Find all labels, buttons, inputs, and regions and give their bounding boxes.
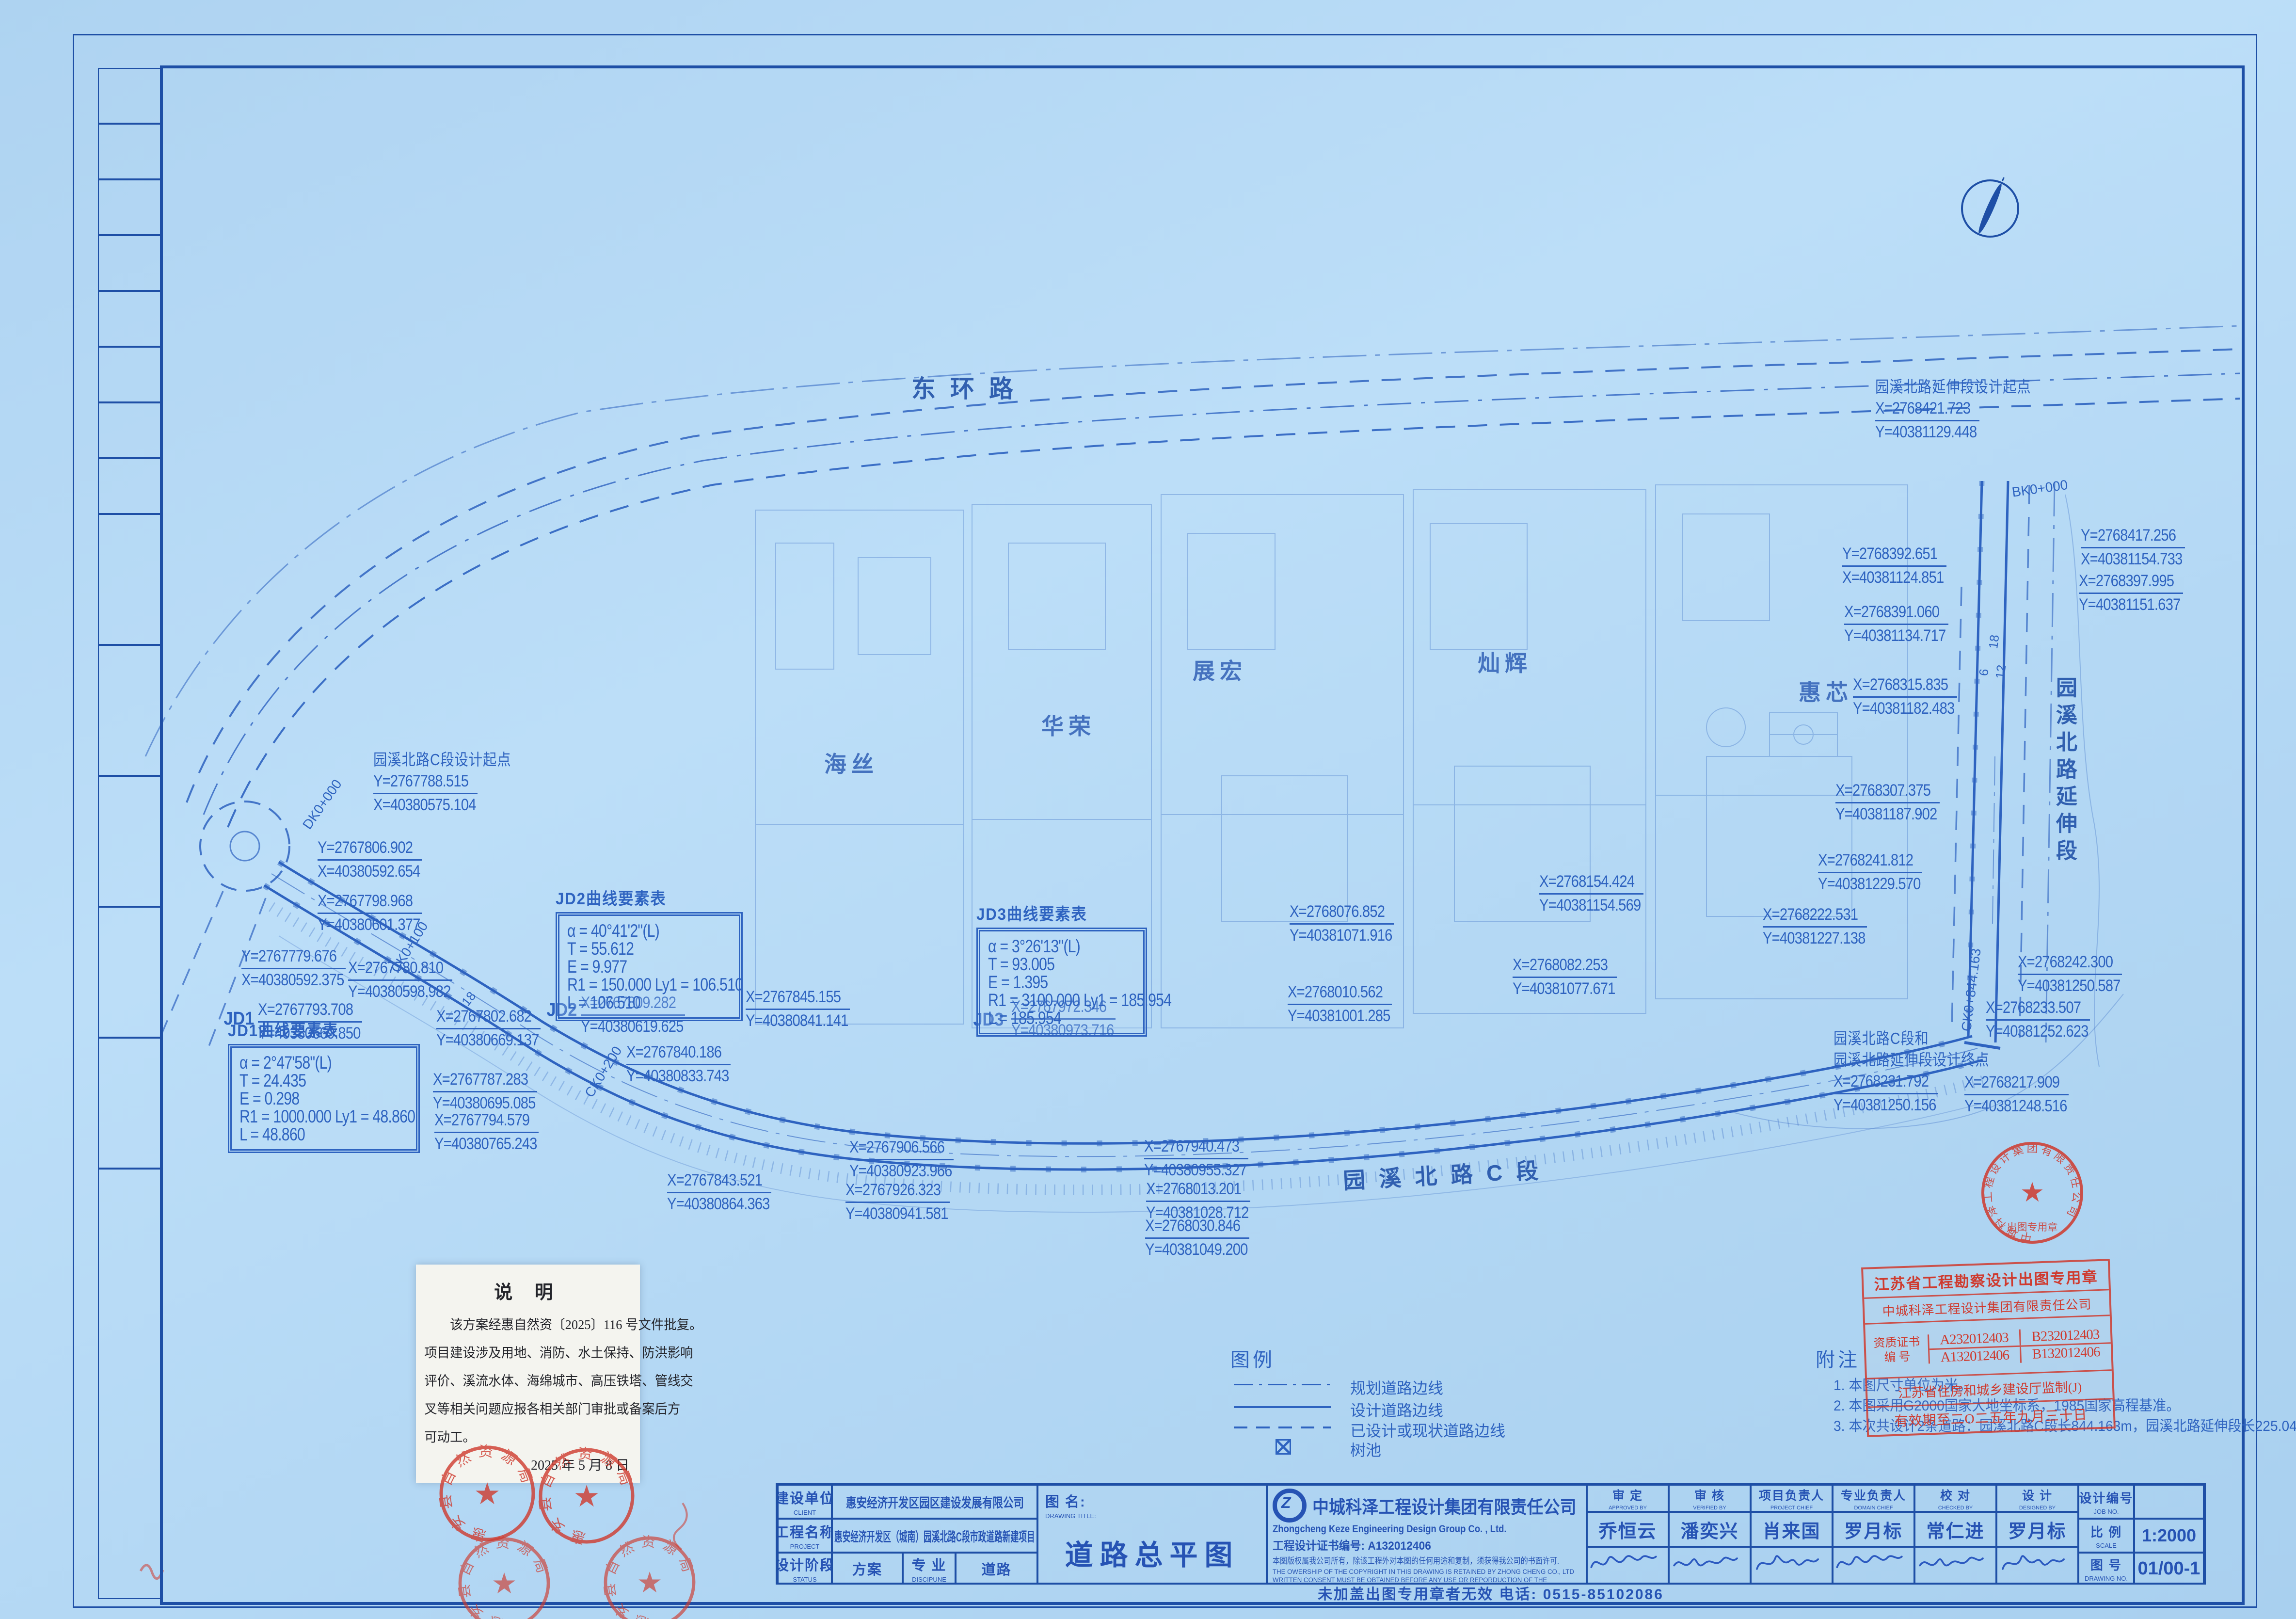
coordinate-callout: X=2768154.424Y=40381154.569 xyxy=(1539,871,1643,916)
curve-table-row: E = 1.395 xyxy=(988,973,1109,991)
role-label: 校 对 xyxy=(1940,1486,1971,1504)
drawing-title: 道路总平图 xyxy=(1065,1532,1239,1573)
notes-lines: 该方案经惠自然资〔2025〕116 号文件批复。项目建设涉及用地、消防、水土保持… xyxy=(416,1311,640,1451)
star-icon: ★ xyxy=(474,1477,501,1511)
callout-line-2: X=40381154.733 xyxy=(2081,548,2185,570)
callout-line-1: Y=2767779.676 xyxy=(241,946,346,969)
role-header: 设 计DESIGNED BY xyxy=(1996,1485,2078,1512)
callout-line-2: Y=40381134.717 xyxy=(1844,625,1948,646)
curve-table-row: T = 24.435 xyxy=(239,1072,378,1090)
drawing-title-label: 图 名: xyxy=(1045,1491,1086,1511)
callout-line-1: X=2768013.201 xyxy=(1146,1178,1250,1202)
role-name: 肖来国 xyxy=(1751,1512,1833,1547)
star-icon: ★ xyxy=(637,1566,662,1599)
role-label: 审 定 xyxy=(1612,1486,1643,1504)
curve-table-row: T = 55.612 xyxy=(567,940,702,958)
legend-item: 设计道路边线 xyxy=(1234,1398,1534,1418)
callout-line-2: Y=40381049.200 xyxy=(1145,1239,1249,1260)
status-value: 方案 xyxy=(852,1558,882,1579)
coordinate-callout: X=2768030.846Y=40381049.200 xyxy=(1145,1215,1249,1260)
callout-line-2: X=40381124.851 xyxy=(1842,567,1946,588)
drawing-no-label-en: DRAWING NO. xyxy=(2085,1575,2128,1582)
coordinate-callout: X=2768222.531Y=40381227.138 xyxy=(1763,904,1867,949)
copyright-cn: 本图版权属我公司所有，除该工程外对本图的任何用途和复制，须获得我公司的书面许可. xyxy=(1273,1555,1559,1567)
callout-title: 园溪北路C段设计起点 xyxy=(373,749,511,770)
remarks-title: 附注 xyxy=(1816,1344,1860,1372)
signature-scribble xyxy=(1915,1548,1988,1579)
callout-line-1: X=2768076.852 xyxy=(1290,901,1394,925)
callout-line-1: X=2768231.792 xyxy=(1834,1071,1938,1094)
callout-line-1: X=2768010.562 xyxy=(1288,981,1392,1005)
signature-scribble xyxy=(1752,1548,1824,1579)
revision-strip-cell xyxy=(98,291,161,347)
revision-strip-cell xyxy=(98,1038,161,1169)
callout-line-2: Y=40381129.448 xyxy=(1875,421,2031,443)
coordinate-callout: X=2767845.155Y=40380841.141 xyxy=(746,986,850,1031)
callout-line-2: X=40380592.375 xyxy=(241,969,346,991)
project-label-en: PROJECT xyxy=(790,1543,820,1550)
curve-table-row: E = 9.977 xyxy=(567,958,702,976)
coordinate-callout: 园溪北路延伸段设计起点X=2768421.723Y=40381129.448 xyxy=(1875,376,2031,443)
notes-line: 叉等相关问题应报各相关部门审批或备案后方 xyxy=(416,1395,631,1423)
role-label-en: CHECKED BY xyxy=(1938,1505,1973,1511)
seal-cert-b1: B232012403 xyxy=(2020,1326,2111,1345)
coordinate-callout: X=2768076.852Y=40381071.916 xyxy=(1290,901,1394,946)
scale-label: 比 例 xyxy=(2090,1523,2122,1540)
legend-title: 图例 xyxy=(1230,1344,1275,1372)
callout-line-2: Y=40381182.483 xyxy=(1853,698,1957,719)
status-label-en: STATUS xyxy=(793,1576,816,1583)
coordinate-callout: X=2767843.521Y=40380864.363 xyxy=(667,1170,771,1215)
status-label: 设计阶段 xyxy=(778,1554,832,1574)
callout-line-1: X=2768154.424 xyxy=(1539,871,1643,895)
callout-line-1: X=2767845.155 xyxy=(746,986,850,1010)
coordinate-callout: X=2767802.682Y=40380669.137 xyxy=(436,1006,541,1051)
notes-line: 该方案经惠自然资〔2025〕116 号文件批复。 xyxy=(416,1311,631,1339)
callout-line-1: X=2767840.186 xyxy=(626,1042,731,1065)
star-icon: ★ xyxy=(2020,1177,2044,1207)
drawing-title-label-en: DRAWING TITLE: xyxy=(1045,1512,1096,1520)
coordinate-callout: Y=2768417.256X=40381154.733 xyxy=(2081,525,2185,570)
curve-table-row: R1 = 3100.000 Ly1 = 185.954 xyxy=(988,991,1109,1009)
role-label-en: VERIFIED BY xyxy=(1693,1505,1726,1511)
star-icon: ★ xyxy=(573,1480,600,1513)
coordinate-callout: X=2768397.995Y=40381151.637 xyxy=(2079,570,2183,615)
tree-pit-icon xyxy=(1276,1439,1291,1455)
callout-line-2: Y=40381151.637 xyxy=(2079,594,2183,615)
coordinate-callout: Y=2767806.902X=40380592.654 xyxy=(318,837,422,882)
role-name-value: 罗月标 xyxy=(2008,1516,2066,1543)
role-name: 常仁进 xyxy=(1914,1512,1996,1547)
company-cert-no: 工程设计证书编号: A132012406 xyxy=(1273,1536,1431,1553)
callout-line-2: Y=40380923.966 xyxy=(849,1160,954,1182)
seal-cert-label: 资质证书 编 号 xyxy=(1865,1334,1930,1366)
callout-line-1: X=2768242.300 xyxy=(2018,951,2122,975)
role-signature xyxy=(1914,1547,1996,1585)
role-signature xyxy=(1833,1547,1914,1585)
coordinate-callout: X=2768391.060Y=40381134.717 xyxy=(1844,601,1948,646)
seal-cert-b2: B132012406 xyxy=(2021,1344,2111,1363)
callout-line-2: X=40380575.104 xyxy=(373,794,511,816)
role-name: 罗月标 xyxy=(1833,1512,1914,1547)
callout-line-2: Y=40381187.902 xyxy=(1835,803,1940,825)
legend-item: 已设计或现状道路边线 xyxy=(1234,1419,1534,1438)
coordinate-callout: 园溪北路C段设计起点Y=2767788.515X=40380575.104 xyxy=(373,749,511,816)
client-value: 惠安经济开发区园区建设发展有限公司 xyxy=(845,1492,1023,1511)
curve-table-box: α = 2°47'58"(L)T = 24.435E = 0.298R1 = 1… xyxy=(228,1044,420,1153)
role-header: 专业负责人DOMAIN CHIEF xyxy=(1833,1485,1914,1512)
curve-table-title: JD1曲线要素表 xyxy=(228,1017,404,1041)
legend-item-label: 树池 xyxy=(1350,1438,1381,1460)
callout-line-2: Y=40381227.138 xyxy=(1763,928,1867,949)
revision-strip-cell xyxy=(98,68,161,124)
company-seal-bottom-text: 出图专用章 xyxy=(2007,1221,2058,1233)
notes-seal-3: 惠安县自然资源局 ★ xyxy=(448,1527,560,1619)
callout-line-1: Y=2768417.256 xyxy=(2081,525,2185,548)
curve-table-row: E = 0.298 xyxy=(239,1090,378,1107)
line-style-icon xyxy=(1234,1406,1331,1411)
curve-table-box: α = 40°41'2"(L)T = 55.612E = 9.977R1 = 1… xyxy=(556,912,743,1021)
callout-line-1: X=2767798.968 xyxy=(318,890,422,914)
callout-line-2: X=40380592.654 xyxy=(318,861,422,882)
notes-title: 说 明 xyxy=(416,1277,640,1304)
coordinate-callout: 园溪北路C段和园溪北路延伸段设计终点X=2768231.792Y=4038125… xyxy=(1834,1028,1990,1116)
curve-table-row: R1 = 150.000 Ly1 = 106.510 xyxy=(567,976,702,994)
notes-seal-4: 惠安县自然资源局 ★ xyxy=(594,1526,705,1619)
coordinate-callout: X=2768082.253Y=40381077.671 xyxy=(1513,954,1617,999)
design-license-seal: 江苏省工程勘察设计出图专用章 中城科泽工程设计集团有限责任公司 资质证书 编 号… xyxy=(1861,1259,2116,1437)
signature-scribble xyxy=(1588,1548,1660,1579)
callout-line-1: Y=2767788.515 xyxy=(373,770,478,794)
callout-line-1: X=2768233.507 xyxy=(1986,997,2090,1021)
notes-line: 项目建设涉及用地、消防、水土保持、防洪影响 xyxy=(416,1339,631,1367)
job-no-label-en: JOB NO. xyxy=(2093,1508,2119,1515)
coordinate-callout: X=2767840.186Y=40380833.743 xyxy=(626,1042,731,1087)
revision-strip-cell xyxy=(98,402,161,458)
curve-table-row: L = 48.860 xyxy=(239,1125,378,1143)
callout-line-2: Y=40380941.581 xyxy=(845,1203,950,1224)
revision-strip-cell xyxy=(98,458,161,514)
curve-table: JD2曲线要素表α = 40°41'2"(L)T = 55.612E = 9.9… xyxy=(556,885,743,1021)
notes-line: 评价、溪流水体、海绵城市、高压铁塔、管线交 xyxy=(416,1367,631,1395)
role-signature xyxy=(1669,1547,1751,1585)
callout-line-2: Y=40381250.156 xyxy=(1834,1094,1990,1116)
curve-table: JD3曲线要素表α = 3°26'13"(L)T = 93.005E = 1.3… xyxy=(976,901,1147,1037)
callout-line-1: X=2768421.723 xyxy=(1875,398,1979,421)
role-signature xyxy=(1996,1547,2078,1585)
revision-strip-cell xyxy=(98,645,161,776)
role-label-en: PROJECT CHIEF xyxy=(1770,1505,1813,1511)
role-label-en: DESIGNED BY xyxy=(2019,1505,2056,1511)
curve-table-title: JD3曲线要素表 xyxy=(976,901,1133,925)
job-no-label: 设计编号 xyxy=(2079,1489,2134,1507)
callout-line-1: X=2767843.521 xyxy=(667,1170,771,1193)
callout-line-1: X=2768397.995 xyxy=(2079,570,2183,594)
legend-item-label: 设计道路边线 xyxy=(1350,1398,1443,1421)
seal-cert-grid: 资质证书 编 号 A232012403 B232012403 A13201240… xyxy=(1865,1314,2112,1378)
callout-line-1: X=2768315.835 xyxy=(1853,674,1957,698)
coordinate-callout: X=2768010.562Y=40381001.285 xyxy=(1288,981,1392,1026)
coordinate-callout: X=2767787.283Y=40380695.085 xyxy=(433,1069,537,1114)
seal-cert-a2: A132012406 xyxy=(1929,1346,2022,1366)
callout-line-2: Y=40380765.243 xyxy=(434,1133,539,1154)
coordinate-callout: Y=2767779.676X=40380592.375 xyxy=(241,946,346,991)
coordinate-callout: Y=2768392.651X=40381124.851 xyxy=(1842,543,1946,588)
role-header: 审 核VERIFIED BY xyxy=(1669,1485,1751,1512)
callout-line-2: Y=40381154.569 xyxy=(1539,895,1643,916)
callout-line-1: X=2768222.531 xyxy=(1763,904,1867,928)
role-label-en: APPROVED BY xyxy=(1609,1505,1647,1511)
scale-value: 1:2000 xyxy=(2142,1525,2196,1546)
coordinate-callout: X=2767798.968Y=40380601.377 xyxy=(318,890,422,935)
curve-table-box: α = 3°26'13"(L)T = 93.005E = 1.395R1 = 3… xyxy=(976,928,1147,1037)
coordinate-callout: X=2768242.300Y=40381250.587 xyxy=(2018,951,2122,996)
road-label-yuanxi-extension: 园溪北路延伸段 xyxy=(2049,676,2080,866)
callout-line-1: X=2767787.283 xyxy=(433,1069,537,1092)
callout-line-2: Y=40381077.671 xyxy=(1513,978,1617,999)
project-value: 惠安经济开发区（城南）园溪北路C段市政道路新建项目 xyxy=(834,1526,1035,1545)
callout-title: 园溪北路延伸段设计起点 xyxy=(1875,376,2031,398)
role-label: 项目负责人 xyxy=(1759,1486,1824,1504)
client-label-en: CLIENT xyxy=(794,1509,816,1516)
revision-strip-cell xyxy=(98,514,161,645)
star-icon: ★ xyxy=(491,1567,517,1600)
coordinate-callout: X=2768233.507Y=40381252.623 xyxy=(1986,997,2090,1042)
curve-table-row: L = 106.510 xyxy=(567,994,702,1011)
line-style-icon xyxy=(1234,1384,1331,1385)
callout-line-2: Y=40380601.377 xyxy=(318,914,422,935)
coordinate-callout: X=2767940.473Y=40380955.327 xyxy=(1144,1136,1248,1181)
discipline-value: 道路 xyxy=(981,1558,1011,1579)
role-header: 项目负责人PROJECT CHIEF xyxy=(1751,1485,1833,1512)
client-label: 建设单位 xyxy=(778,1487,832,1507)
company-name: 中城科泽工程设计集团有限责任公司 xyxy=(1312,1492,1577,1519)
role-label: 设 计 xyxy=(2022,1486,2053,1504)
dimension-label: 18 xyxy=(1986,634,2002,649)
coordinate-callout: X=2767794.579Y=40380765.243 xyxy=(434,1109,539,1154)
role-name-value: 潘奕兴 xyxy=(1680,1516,1738,1543)
callout-line-1: X=2768082.253 xyxy=(1513,954,1617,978)
signature-scribble xyxy=(1834,1548,1906,1579)
coordinate-callout: X=2767906.566Y=40380923.966 xyxy=(849,1137,954,1182)
dimension-label: 12 xyxy=(1993,664,2009,679)
role-name-value: 常仁进 xyxy=(1926,1516,1984,1543)
coordinate-callout: X=2768241.812Y=40381229.570 xyxy=(1818,850,1922,895)
legend-item: 规划道路边线 xyxy=(1234,1376,1534,1395)
curve-table-row: R1 = 1000.000 Ly1 = 48.860 xyxy=(239,1107,378,1125)
role-label: 审 核 xyxy=(1694,1486,1725,1504)
role-name: 乔恒云 xyxy=(1587,1512,1669,1547)
seal-cert-a1: A232012403 xyxy=(1929,1329,2021,1348)
parcel-label: 华荣 xyxy=(1041,709,1096,741)
coordinate-callout: X=2768315.835Y=40381182.483 xyxy=(1853,674,1957,719)
discipline-label-en: DISCIPUNE xyxy=(912,1576,946,1583)
callout-line-1: X=2767802.682 xyxy=(436,1006,541,1029)
callout-line-1: X=2767926.323 xyxy=(845,1179,950,1203)
callout-line-2: Y=40381252.623 xyxy=(1986,1021,2090,1042)
curve-table-row: α = 40°41'2"(L) xyxy=(567,922,702,940)
legend-item-label: 规划道路边线 xyxy=(1350,1376,1443,1398)
callout-line-1: X=2767906.566 xyxy=(849,1137,954,1160)
discipline-label: 专 业 xyxy=(911,1554,946,1574)
callout-line-2: Y=40380841.141 xyxy=(746,1010,850,1031)
revision-strip-cell xyxy=(98,179,161,235)
callout-line-2: Y=40381071.916 xyxy=(1290,925,1394,946)
callout-line-1: X=2768241.812 xyxy=(1818,850,1922,873)
revision-strip-cell xyxy=(98,1169,161,1599)
role-signature xyxy=(1751,1547,1833,1585)
callout-title: 园溪北路延伸段设计终点 xyxy=(1834,1049,1990,1071)
callout-line-1: X=2767794.579 xyxy=(434,1109,539,1133)
curve-table-row: α = 2°47'58"(L) xyxy=(239,1054,378,1072)
role-name: 罗月标 xyxy=(1996,1512,2078,1547)
role-label-en: DOMAIN CHIEF xyxy=(1854,1505,1893,1511)
parcel-label: 海丝 xyxy=(824,747,878,779)
parcel-label: 惠芯 xyxy=(1799,675,1853,707)
legend-item: 树池 xyxy=(1234,1438,1534,1458)
signature-scribble xyxy=(1670,1548,1742,1579)
road-label-donghuan: 东环路 xyxy=(911,369,1028,404)
curve-table-row: T = 93.005 xyxy=(988,955,1109,973)
parcel-label: 展宏 xyxy=(1193,654,1247,686)
line-style-icon xyxy=(1234,1427,1331,1428)
callout-line-1: X=2768307.375 xyxy=(1835,780,1940,803)
role-name-value: 肖来国 xyxy=(1762,1516,1820,1543)
drawing-no-label: 图 号 xyxy=(2090,1555,2122,1573)
callout-line-2: Y=40380669.137 xyxy=(436,1029,541,1051)
company-name-en: Zhongcheng Keze Engineering Design Group… xyxy=(1273,1523,1507,1535)
role-name-value: 乔恒云 xyxy=(1598,1516,1657,1543)
title-block-footer: 未加盖出图专用章者无效 电话: 0515-85102086 xyxy=(776,1584,2206,1602)
callout-line-2: Y=40380833.743 xyxy=(626,1065,731,1087)
company-round-seal: 中城科泽工程设计集团有限责任公司 ★ 出图专用章 xyxy=(1969,1130,2095,1256)
seal-cert-label-2: 编 号 xyxy=(1866,1349,1929,1365)
callout-line-2: Y=40381229.570 xyxy=(1818,873,1922,895)
revision-strip-cell xyxy=(98,907,161,1038)
callout-line-1: Y=2768392.651 xyxy=(1842,543,1946,567)
coordinate-callout: X=2767926.323Y=40380941.581 xyxy=(845,1179,950,1224)
role-label: 专业负责人 xyxy=(1841,1486,1906,1504)
company-logo-icon: Z xyxy=(1273,1489,1307,1523)
role-name-value: 罗月标 xyxy=(1844,1516,1902,1543)
revision-strip-cell xyxy=(98,235,161,291)
role-header: 审 定APPROVED BY xyxy=(1587,1485,1669,1512)
curve-table-row: L = 185.954 xyxy=(988,1009,1109,1027)
callout-line-2: Y=40380864.363 xyxy=(667,1193,771,1215)
revision-strip-cell xyxy=(98,124,161,179)
coordinate-callout: X=2768307.375Y=40381187.902 xyxy=(1835,780,1940,825)
curve-table-row: α = 3°26'13"(L) xyxy=(988,937,1109,955)
north-compass-icon xyxy=(1951,170,2029,247)
role-name: 潘奕兴 xyxy=(1669,1512,1751,1547)
callout-line-1: Y=2767806.902 xyxy=(318,837,422,861)
title-block: 建设单位 CLIENT 惠安经济开发区园区建设发展有限公司 工程名称 PROJE… xyxy=(776,1483,2206,1585)
signature-scribble xyxy=(1997,1548,2070,1579)
callout-line-2: Y=40381001.285 xyxy=(1288,1005,1392,1026)
blueprint-sheet: 东环路 园溪北路C段 园溪北路延伸段 海丝华荣展宏灿辉惠芯 园溪北路C段设计起点… xyxy=(0,0,2296,1619)
callout-line-1: X=2768391.060 xyxy=(1844,601,1948,625)
curve-table: JD1曲线要素表α = 2°47'58"(L)T = 24.435E = 0.2… xyxy=(228,1017,420,1153)
seal-cert-label-1: 资质证书 xyxy=(1865,1334,1928,1351)
callout-line-1: X=2768030.846 xyxy=(1145,1215,1249,1239)
callout-line-2: Y=40380598.982 xyxy=(348,981,452,1002)
revision-strip-cell xyxy=(98,776,161,907)
project-label: 工程名称 xyxy=(778,1521,832,1541)
callout-line-1: X=2767940.473 xyxy=(1144,1136,1248,1159)
drawing-no-value: 01/00-1 xyxy=(2138,1558,2200,1579)
parcel-label: 灿辉 xyxy=(1478,646,1532,678)
scale-label-en: SCALE xyxy=(2096,1542,2117,1549)
curve-table-title: JD2曲线要素表 xyxy=(556,885,728,909)
callout-line-2: Y=40381250.587 xyxy=(2018,975,2122,996)
revision-strip-cell xyxy=(98,347,161,402)
callout-line-2: Y=40380955.327 xyxy=(1144,1159,1248,1181)
role-signature xyxy=(1587,1547,1669,1585)
role-header: 校 对CHECKED BY xyxy=(1914,1485,1996,1512)
